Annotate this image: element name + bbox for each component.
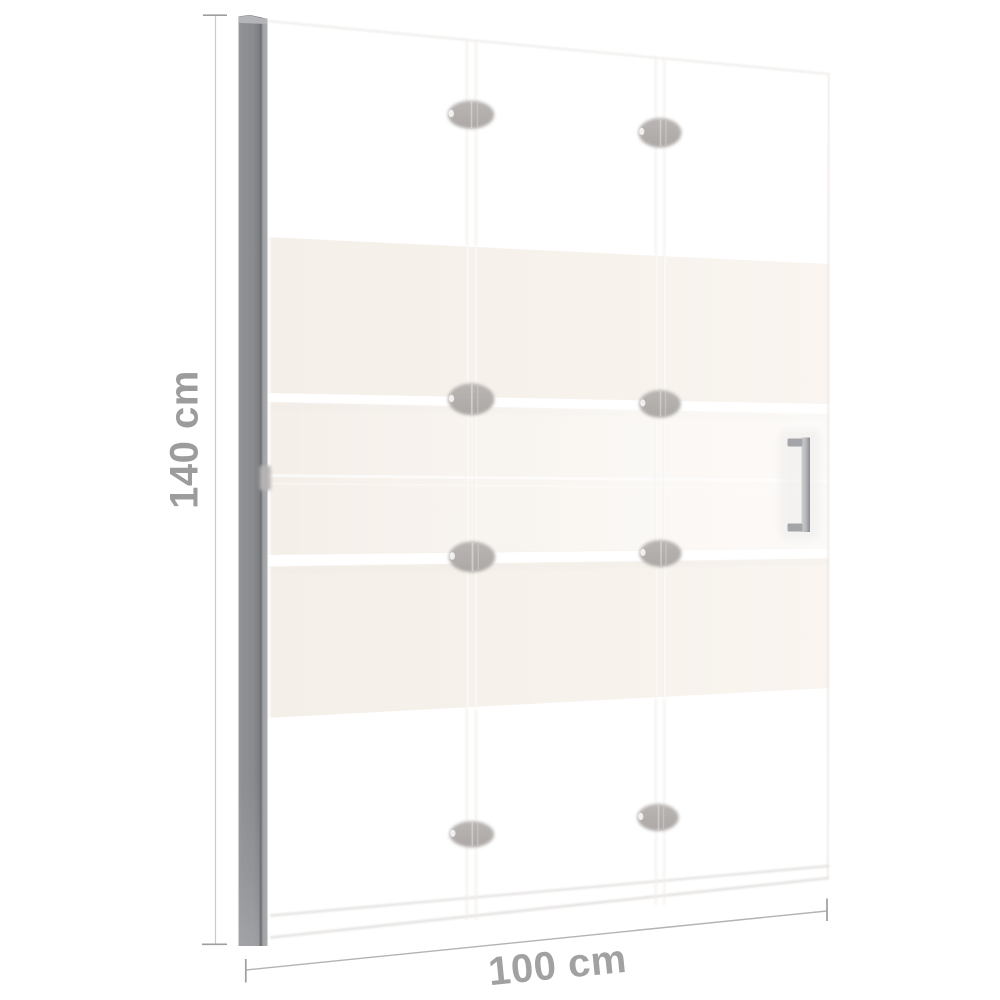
svg-text:140 cm: 140 cm	[163, 370, 207, 509]
